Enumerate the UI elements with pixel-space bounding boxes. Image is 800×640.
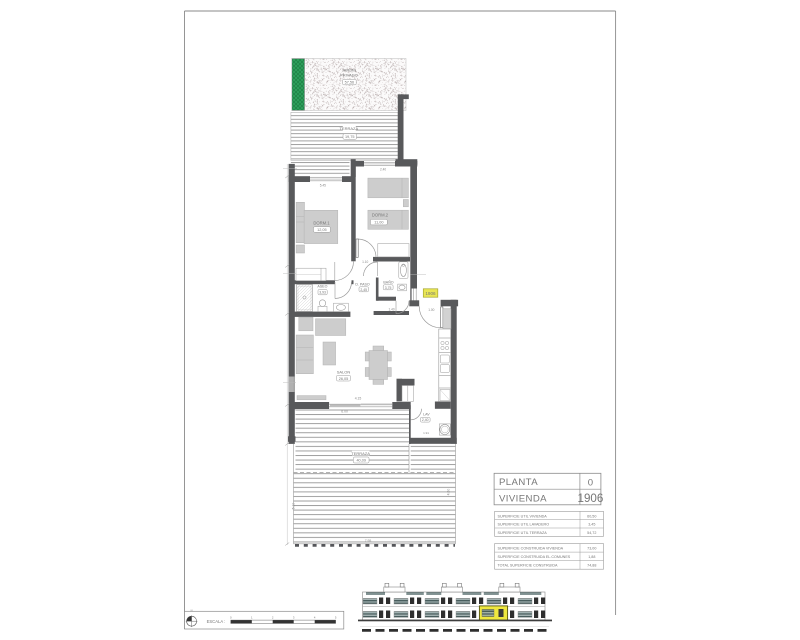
svg-text:1906: 1906 [578,492,604,505]
svg-text:6.00: 6.00 [341,409,348,413]
svg-text:1.00: 1.00 [428,308,434,312]
svg-text:PLANTA: PLANTA [499,477,538,488]
svg-text:N: N [191,609,193,613]
svg-text:TERRAZA: TERRAZA [339,126,358,131]
svg-text:1,88: 1,88 [588,555,595,559]
svg-text:4.15: 4.15 [355,396,362,400]
svg-text:D. PASO: D. PASO [355,283,370,287]
svg-text:73,00: 73,00 [587,547,596,551]
svg-text:1.10: 1.10 [362,260,368,264]
svg-text:VIVIENDA: VIVIENDA [499,493,547,504]
svg-text:4.60: 4.60 [447,489,451,496]
svg-text:40,09: 40,09 [356,459,366,463]
svg-text:2,45: 2,45 [360,288,367,292]
svg-text:DORM.1: DORM.1 [313,221,330,226]
svg-text:2,40: 2,40 [422,418,429,422]
svg-text:11,00: 11,00 [374,221,383,225]
svg-text:5.45: 5.45 [320,183,326,187]
svg-text:LAV: LAV [423,413,430,417]
svg-text:TERRAZA: TERRAZA [351,451,370,456]
svg-text:2.40: 2.40 [380,168,386,172]
svg-text:5.10: 5.10 [292,503,296,510]
svg-text:60,50: 60,50 [587,514,596,518]
svg-text:1906: 1906 [425,291,436,296]
svg-text:ESCALA :: ESCALA : [207,619,226,624]
svg-text:ASEO: ASEO [317,285,327,289]
svg-text:SUPERFICIE CONSTRUIDA VIVIENDA: SUPERFICIE CONSTRUIDA VIVIENDA [498,547,564,551]
svg-text:TOTAL SUPERFICIE CONSTRUIDA: TOTAL SUPERFICIE CONSTRUIDA [498,564,559,568]
svg-text:19,75: 19,75 [345,135,355,139]
svg-text:12,05: 12,05 [317,228,327,232]
svg-text:SUPERFICIE UTIL VIVIENDA: SUPERFICIE UTIL VIVIENDA [498,514,548,518]
svg-text:7.95: 7.95 [365,539,372,543]
svg-text:SUPERFICIE UTIL LAVADERO: SUPERFICIE UTIL LAVADERO [498,523,550,527]
svg-text:SALON: SALON [337,370,351,375]
svg-text:3,45: 3,45 [588,523,595,527]
svg-text:3,93: 3,93 [319,291,326,295]
svg-text:3,75: 3,75 [385,286,392,290]
svg-text:1.40: 1.40 [388,307,394,311]
svg-text:DORM.2: DORM.2 [372,213,389,218]
svg-text:SUPERFICIE UTIL TERRAZA: SUPERFICIE UTIL TERRAZA [498,531,548,535]
svg-text:54,72: 54,72 [587,531,596,535]
svg-text:SUPERFICIE CONSTRUIDA EL.COMUN: SUPERFICIE CONSTRUIDA EL.COMUNES [498,555,571,559]
svg-text:PRIVADO: PRIVADO [340,73,358,78]
svg-text:0: 0 [588,477,593,488]
svg-text:57,56: 57,56 [345,81,355,85]
svg-text:1.91: 1.91 [423,431,429,435]
svg-text:BAÑO: BAÑO [383,280,393,285]
svg-text:26,05: 26,05 [339,377,349,381]
svg-text:74,88: 74,88 [587,564,596,568]
